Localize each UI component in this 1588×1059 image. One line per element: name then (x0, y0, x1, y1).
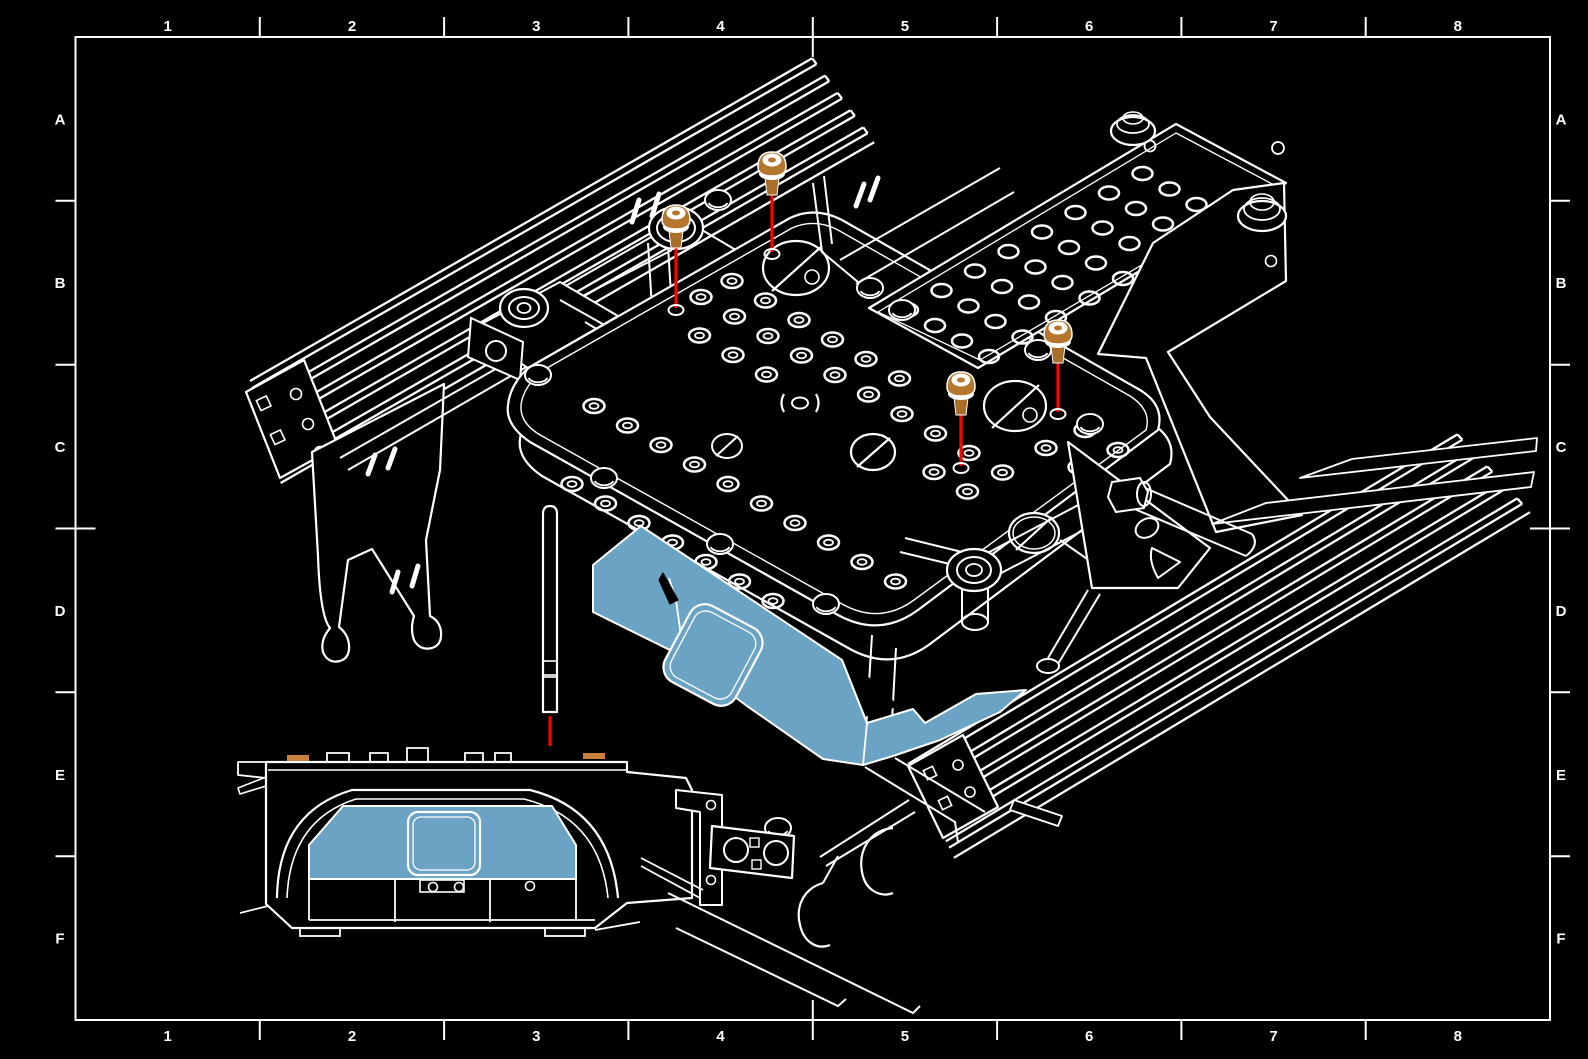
svg-text:4: 4 (716, 1028, 725, 1045)
svg-text:C: C (55, 439, 66, 456)
svg-text:A: A (55, 111, 66, 128)
svg-text:B: B (1556, 275, 1567, 292)
svg-text:E: E (1556, 767, 1566, 784)
svg-text:F: F (1556, 931, 1565, 948)
svg-text:2: 2 (348, 18, 356, 35)
svg-text:C: C (1556, 439, 1567, 456)
svg-text:4: 4 (716, 18, 725, 35)
svg-text:8: 8 (1454, 1028, 1462, 1045)
svg-text:D: D (55, 603, 66, 620)
svg-text:7: 7 (1269, 18, 1277, 35)
svg-text:3: 3 (532, 1028, 540, 1045)
svg-text:6: 6 (1085, 18, 1093, 35)
svg-text:B: B (55, 275, 66, 292)
svg-text:7: 7 (1269, 1028, 1277, 1045)
svg-text:5: 5 (901, 18, 909, 35)
svg-text:D: D (1556, 603, 1567, 620)
svg-text:2: 2 (348, 1028, 356, 1045)
svg-text:F: F (55, 931, 64, 948)
svg-text:E: E (55, 767, 65, 784)
svg-text:3: 3 (532, 18, 540, 35)
svg-text:1: 1 (164, 18, 172, 35)
svg-text:1: 1 (164, 1028, 172, 1045)
svg-text:5: 5 (901, 1028, 909, 1045)
svg-text:6: 6 (1085, 1028, 1093, 1045)
svg-text:A: A (1556, 111, 1567, 128)
svg-text:8: 8 (1454, 18, 1462, 35)
